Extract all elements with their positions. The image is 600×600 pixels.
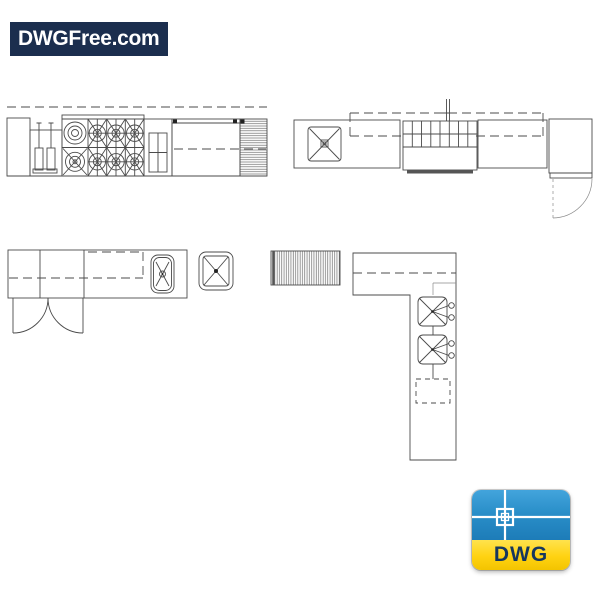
autocad-crosshair-icon xyxy=(472,490,570,540)
drawing-l-shaped-counter-plan xyxy=(353,253,456,460)
dwg-badge-label: DWG xyxy=(494,543,548,567)
drawing-range-counter-plan xyxy=(7,107,267,176)
drawing-counter-double-door-plan xyxy=(8,250,187,333)
dwg-file-badge: DWG xyxy=(472,490,570,570)
dwg-badge-band: DWG xyxy=(472,540,570,570)
drawing-sink-range-counter-door-plan xyxy=(294,99,592,218)
page: { "page": { "background_color": "#ffffff… xyxy=(0,0,600,600)
drawing-hatched-drainboard-plan xyxy=(271,251,340,285)
drawing-square-sink-unit-plan xyxy=(199,252,233,290)
